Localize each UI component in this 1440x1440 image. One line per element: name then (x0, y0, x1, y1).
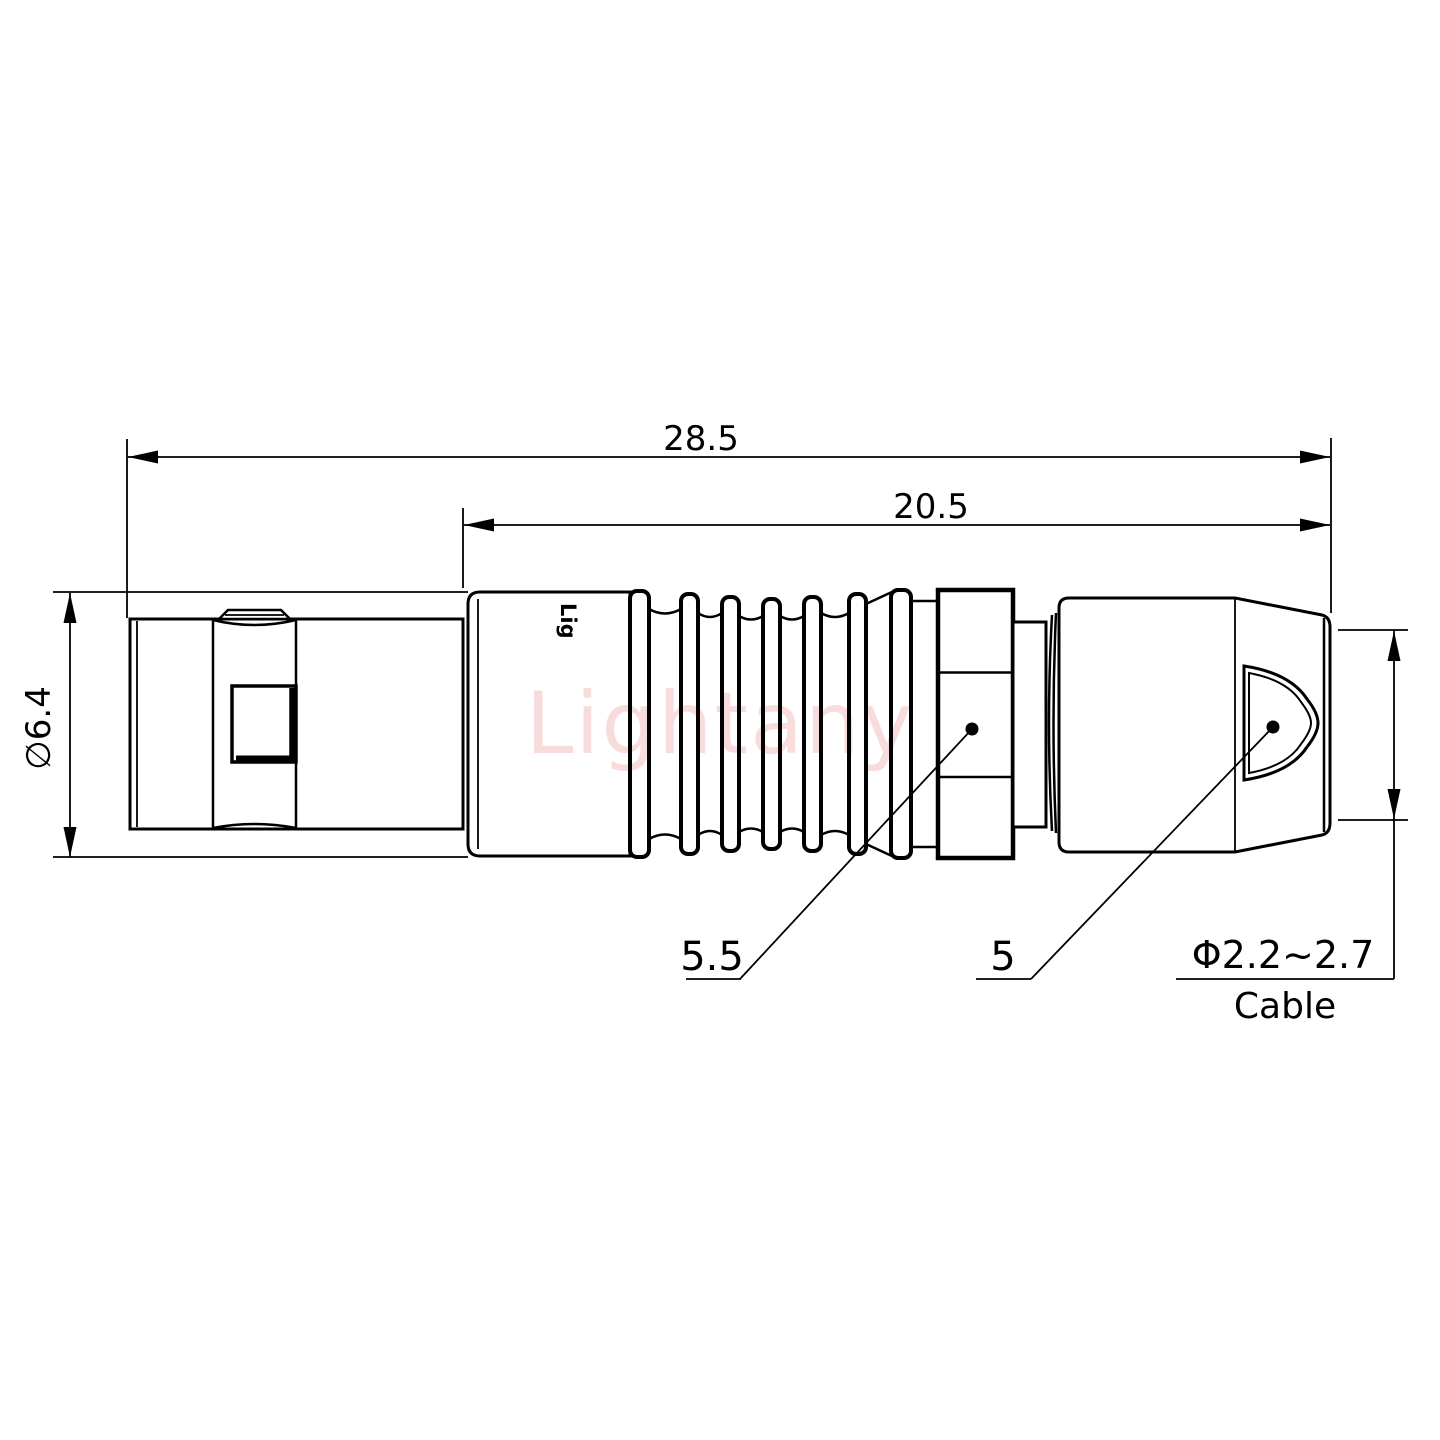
body-marking-text: Lig (556, 603, 580, 639)
callout-nut-text: 5.5 (680, 934, 744, 980)
rib-neck-arc (649, 835, 681, 840)
watermark-text: Lightany (526, 674, 915, 774)
dim-rear-length-text: 20.5 (893, 487, 969, 527)
rib-cone-top (866, 592, 892, 604)
rib-neck-arc (698, 831, 722, 835)
arrowhead-down (1388, 789, 1401, 819)
arrowhead-right (1300, 451, 1330, 464)
rib-neck-arc (739, 616, 763, 620)
connector-drawing: Lig (0, 0, 1440, 1440)
arrowhead-left (464, 519, 494, 532)
dim-overall-length: 28.5 (127, 419, 1331, 618)
dim-overall-length-text: 28.5 (663, 419, 739, 459)
technical-drawing-page: Lig (0, 0, 1440, 1440)
callout-boot-text: 5 (990, 934, 1015, 980)
rib-neck-arc (821, 613, 849, 617)
rib-neck-arc (780, 616, 804, 620)
cable-label-text: Cable (1234, 986, 1336, 1027)
front-barrel (130, 610, 463, 829)
arrowhead-down (64, 827, 77, 857)
rib-neck-arc (649, 609, 681, 614)
arrowhead-left (128, 451, 158, 464)
arrowhead-up (1388, 631, 1401, 661)
rib-neck-arc (821, 831, 849, 835)
rib-neck-arc (739, 829, 763, 833)
arrowhead-right (1300, 519, 1330, 532)
rib-neck-arc (780, 829, 804, 833)
latch-window (232, 686, 296, 762)
arrowhead-up (64, 593, 77, 623)
collet-cylinder (1013, 622, 1046, 827)
rib-cone-bottom (866, 844, 892, 856)
dim-rear-length: 20.5 (463, 487, 1330, 588)
dim-front-diameter-text: ∅6.4 (19, 686, 59, 770)
crimp-ring-arc (1054, 613, 1057, 833)
rib-neck-arc (698, 613, 722, 617)
rear-assembly (1013, 598, 1330, 852)
crimp-ring-arc (1049, 615, 1052, 831)
dim-cable-range-text: Φ2.2~2.7 (1192, 933, 1375, 977)
